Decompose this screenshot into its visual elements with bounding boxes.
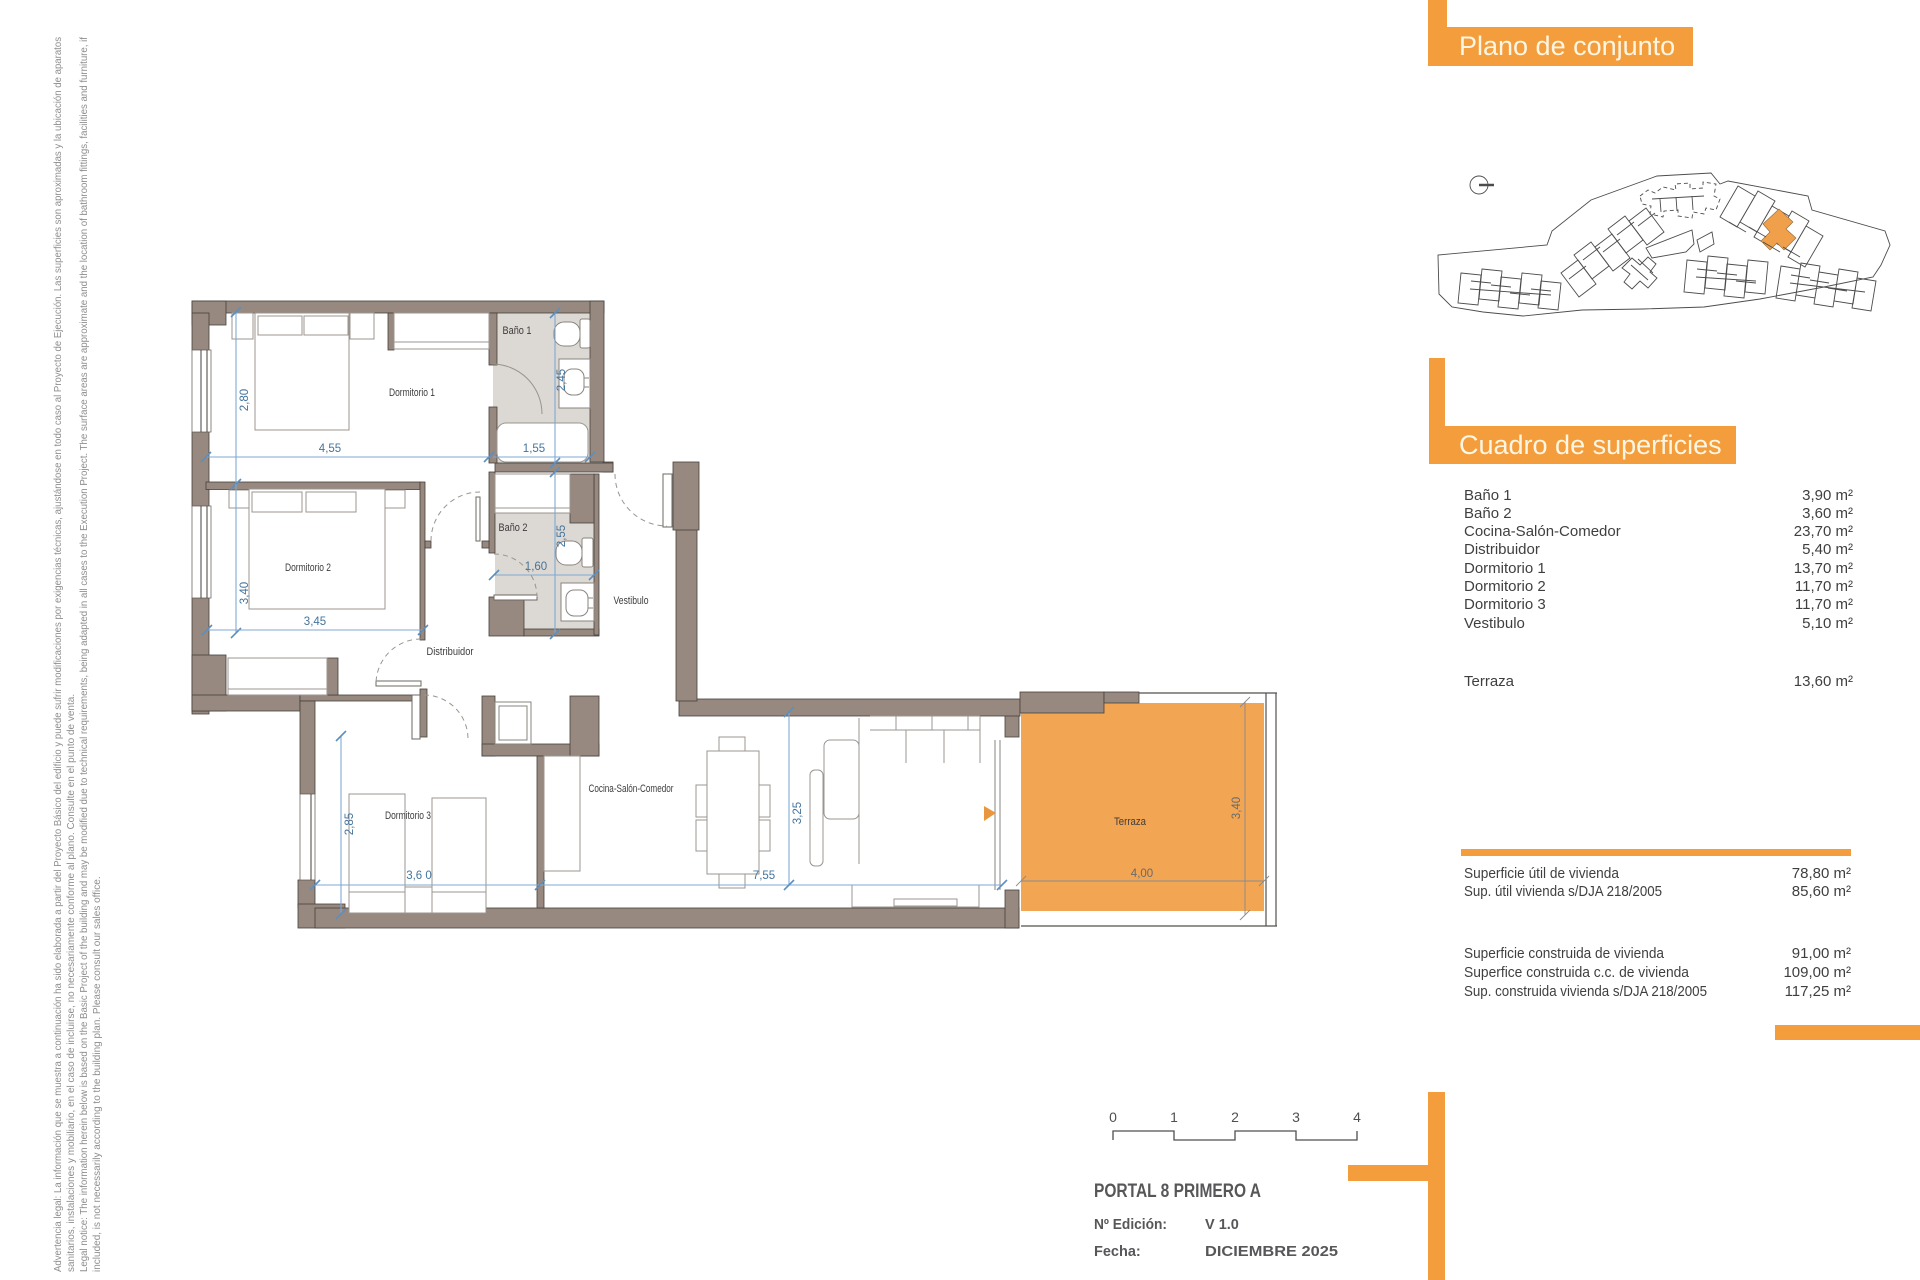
svg-text:1,60: 1,60 <box>525 561 547 573</box>
svg-text:V 1.0: V 1.0 <box>1205 1217 1239 1233</box>
svg-text:3,60 m²: 3,60 m² <box>1802 505 1853 522</box>
svg-text:2,80: 2,80 <box>239 389 251 411</box>
svg-text:11,70 m²: 11,70 m² <box>1795 578 1853 595</box>
svg-text:3: 3 <box>1292 1109 1300 1125</box>
svg-text:11,70 m²: 11,70 m² <box>1795 596 1853 613</box>
svg-text:13,70 m²: 13,70 m² <box>1794 560 1853 577</box>
svg-text:Dormitorio 3: Dormitorio 3 <box>385 810 431 822</box>
svg-text:3,90 m²: 3,90 m² <box>1802 487 1853 504</box>
svg-text:5,10 m²: 5,10 m² <box>1802 615 1853 632</box>
svg-text:Sup. útil vivienda s/DJA 218/2: Sup. útil vivienda s/DJA 218/2005 <box>1464 883 1662 900</box>
svg-text:DICIEMBRE 2025: DICIEMBRE 2025 <box>1205 1244 1338 1260</box>
svg-text:4,55: 4,55 <box>319 443 341 455</box>
svg-text:sanitarios, instalaciones y mo: sanitarios, instalaciones y mobiliario, … <box>66 694 77 1272</box>
svg-text:5,40 m²: 5,40 m² <box>1802 541 1853 558</box>
svg-text:3,40: 3,40 <box>239 582 251 604</box>
svg-text:Baño 2: Baño 2 <box>499 522 528 534</box>
svg-text:109,00 m²: 109,00 m² <box>1783 964 1851 981</box>
svg-text:Baño 1: Baño 1 <box>503 325 532 337</box>
svg-text:included, is not necessarily a: included, is not necessarily according t… <box>92 876 103 1272</box>
svg-text:2,45: 2,45 <box>556 369 568 391</box>
svg-text:Advertencia legal: La informac: Advertencia legal: La información que se… <box>53 37 64 1272</box>
svg-text:Vestibulo: Vestibulo <box>1464 615 1525 632</box>
svg-text:2,85: 2,85 <box>344 813 356 835</box>
svg-text:Cuadro de superficies: Cuadro de superficies <box>1459 430 1722 460</box>
svg-text:117,25 m²: 117,25 m² <box>1785 983 1851 1000</box>
svg-text:Distribuidor: Distribuidor <box>427 646 474 658</box>
svg-text:Dormitorio 3: Dormitorio 3 <box>1464 596 1546 613</box>
svg-text:Dormitorio 2: Dormitorio 2 <box>1464 578 1546 595</box>
svg-text:1: 1 <box>1170 1109 1178 1125</box>
svg-text:Baño 2: Baño 2 <box>1464 505 1512 522</box>
svg-text:Superfice construida c.c. de v: Superfice construida c.c. de vivienda <box>1464 964 1690 981</box>
svg-text:3,40: 3,40 <box>1231 797 1243 819</box>
svg-text:2: 2 <box>1231 1109 1239 1125</box>
svg-text:3,25: 3,25 <box>792 802 804 824</box>
svg-text:Nº Edición:: Nº Edición: <box>1094 1217 1167 1233</box>
svg-text:1,55: 1,55 <box>523 443 545 455</box>
svg-text:Fecha:: Fecha: <box>1094 1244 1141 1260</box>
svg-text:Terraza: Terraza <box>1464 673 1515 690</box>
svg-text:Dormitorio 2: Dormitorio 2 <box>285 562 331 574</box>
svg-text:Cocina-Salón-Comedor: Cocina-Salón-Comedor <box>589 783 674 795</box>
svg-text:4: 4 <box>1353 1109 1361 1125</box>
svg-text:3,45: 3,45 <box>304 616 326 628</box>
svg-text:Distribuidor: Distribuidor <box>1464 541 1540 558</box>
svg-text:PORTAL 8 PRIMERO A: PORTAL 8 PRIMERO A <box>1094 1181 1261 1202</box>
svg-text:Dormitorio 1: Dormitorio 1 <box>389 387 435 399</box>
svg-text:7,55: 7,55 <box>753 870 775 882</box>
svg-text:Vestibulo: Vestibulo <box>614 595 649 607</box>
svg-text:Baño 1: Baño 1 <box>1464 487 1512 504</box>
svg-text:13,60 m²: 13,60 m² <box>1794 673 1853 690</box>
svg-text:Superficie construida de vivie: Superficie construida de vivienda <box>1464 945 1665 962</box>
svg-text:85,60 m²: 85,60 m² <box>1792 883 1851 900</box>
svg-text:0: 0 <box>1109 1109 1117 1125</box>
svg-text:Legal notice: The information: Legal notice: The information herein bel… <box>79 37 90 1272</box>
svg-text:Superficie útil de vivienda: Superficie útil de vivienda <box>1464 865 1620 882</box>
svg-text:2,55: 2,55 <box>556 525 568 547</box>
svg-text:Terraza: Terraza <box>1114 816 1147 828</box>
svg-text:Dormitorio 1: Dormitorio 1 <box>1464 560 1546 577</box>
svg-text:4,00: 4,00 <box>1131 868 1153 880</box>
svg-text:Plano de conjunto: Plano de conjunto <box>1459 31 1675 61</box>
svg-text:3,6 0: 3,6 0 <box>406 870 432 882</box>
svg-text:78,80 m²: 78,80 m² <box>1792 865 1851 882</box>
svg-text:Sup. construida vivienda s/DJA: Sup. construida vivienda s/DJA 218/2005 <box>1464 983 1707 1000</box>
svg-text:Cocina-Salón-Comedor: Cocina-Salón-Comedor <box>1464 523 1621 540</box>
svg-text:23,70 m²: 23,70 m² <box>1794 523 1853 540</box>
svg-text:91,00 m²: 91,00 m² <box>1792 945 1851 962</box>
